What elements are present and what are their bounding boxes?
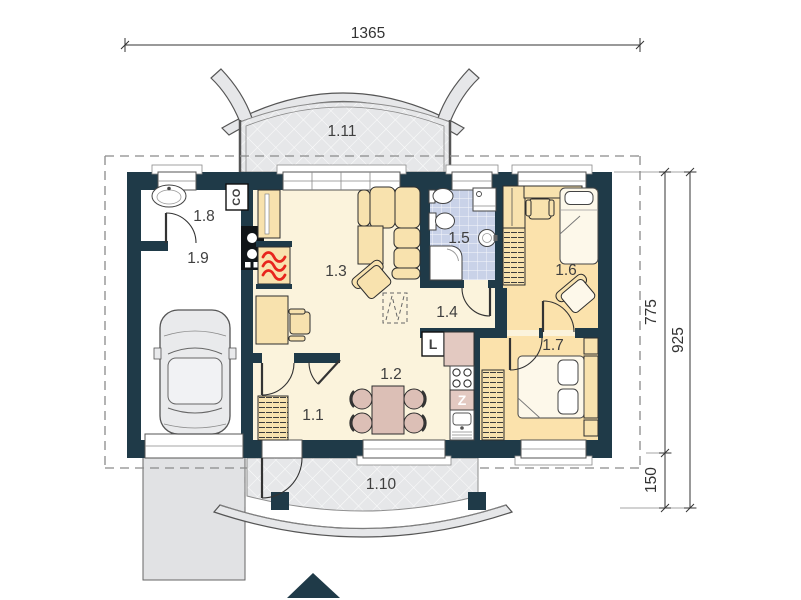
terrace-bottom	[214, 458, 512, 537]
terrace-column-right	[468, 492, 486, 510]
room-label-1-5: 1.5	[448, 230, 470, 247]
stove	[450, 366, 474, 390]
wardrobe-bedroom1	[503, 186, 525, 285]
car-mirror-right	[229, 348, 236, 359]
nightstand-bottom	[584, 420, 598, 436]
coffee-table	[358, 226, 383, 264]
wall-hall-bedroom1	[495, 288, 507, 332]
room-label-1-11: 1.11	[327, 123, 356, 140]
dimension-top: 1365	[121, 25, 644, 52]
fireplace	[256, 241, 292, 289]
terrace-door	[262, 440, 302, 458]
washbasin	[479, 230, 496, 247]
wall-hall-a	[241, 353, 262, 363]
room-label-1-2: 1.2	[380, 366, 402, 383]
garage-car	[154, 310, 236, 434]
room-label-1-6: 1.6	[555, 262, 577, 279]
kitchen-sink	[450, 410, 474, 440]
wall-west	[127, 172, 141, 458]
room-label-1-7: 1.7	[542, 337, 564, 354]
dimension-right-outer: 925	[670, 168, 696, 512]
desk	[256, 296, 288, 344]
wall-corridor-south-c	[575, 328, 598, 338]
room-label-1-9: 1.9	[187, 250, 209, 267]
floor-plan-page: CO	[0, 0, 801, 600]
wall-garage	[241, 186, 253, 444]
wardrobe-hall	[258, 396, 288, 440]
room-label-1-10: 1.10	[366, 476, 397, 493]
floor-plan-drawing: CO	[0, 0, 801, 600]
single-bed	[560, 188, 598, 264]
wardrobe-bedroom2	[482, 370, 504, 440]
boiler-co-label: CO	[231, 188, 243, 206]
terrace-top-wing-left	[211, 69, 252, 122]
dimension-terrace-depth: 150	[643, 467, 660, 493]
wall-east	[598, 172, 612, 458]
chair-bedroom1	[526, 199, 554, 219]
car-mirror-left	[154, 348, 161, 359]
room-label-1-8: 1.8	[193, 208, 215, 225]
wall-bath-south-a	[420, 280, 464, 288]
bidet	[433, 189, 453, 204]
dimension-depth-total: 925	[670, 327, 687, 353]
fridge-label: L	[429, 336, 438, 352]
room-label-1-4: 1.4	[436, 304, 458, 321]
washing-machine	[473, 188, 496, 211]
dimension-width-total: 1365	[351, 25, 385, 42]
sink-label: Z	[458, 392, 467, 408]
terrace-column-left	[271, 492, 289, 510]
room-label-1-3: 1.3	[325, 263, 347, 280]
wall-utility-divider	[141, 241, 168, 251]
toilet	[436, 213, 455, 229]
headboard	[584, 356, 598, 418]
corner-shower	[430, 246, 462, 280]
north-arrow-icon	[287, 573, 340, 598]
dimension-depth-house: 775	[643, 299, 660, 325]
terrace-top-wing-right	[438, 69, 479, 122]
nightstand-top	[584, 338, 598, 354]
wall-hall-b	[294, 353, 340, 363]
room-label-1-1: 1.1	[302, 407, 324, 424]
dining-table	[372, 386, 404, 434]
